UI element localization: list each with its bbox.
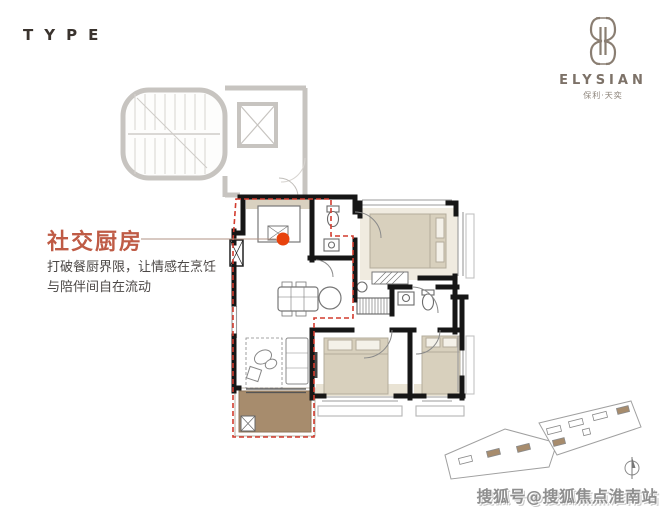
living-furniture bbox=[246, 338, 318, 388]
dining-set bbox=[278, 282, 341, 316]
watermark: 搜狐号@搜狐焦点淮南站 bbox=[476, 483, 658, 507]
page-root: TYPE ELYSIAN 保利·天奕 社交厨房 打破餐厨界限，让情感在烹饪 与陪… bbox=[0, 0, 660, 508]
entry-door-arc bbox=[279, 178, 298, 197]
wardrobe bbox=[357, 298, 391, 314]
floor-plan bbox=[110, 80, 490, 450]
core-area bbox=[123, 88, 306, 197]
stool bbox=[357, 282, 367, 292]
type-heading: TYPE bbox=[23, 26, 109, 44]
dining-table bbox=[278, 287, 318, 311]
balcony bbox=[235, 388, 315, 436]
brand-name: ELYSIAN bbox=[548, 73, 658, 88]
elysian-emblem-icon bbox=[583, 14, 623, 68]
sofa bbox=[286, 338, 308, 384]
north-arrow-icon bbox=[625, 457, 639, 479]
kitchen-marker-dot bbox=[277, 233, 290, 246]
site-plan bbox=[435, 393, 650, 493]
site-parcel-left bbox=[445, 429, 557, 479]
brand-logo: ELYSIAN 保利·天奕 bbox=[548, 14, 658, 101]
round-table bbox=[319, 287, 341, 309]
toilet-1 bbox=[328, 212, 339, 227]
brand-subtitle: 保利·天奕 bbox=[548, 90, 658, 101]
armchair bbox=[246, 366, 261, 381]
bed-master bbox=[370, 214, 446, 268]
